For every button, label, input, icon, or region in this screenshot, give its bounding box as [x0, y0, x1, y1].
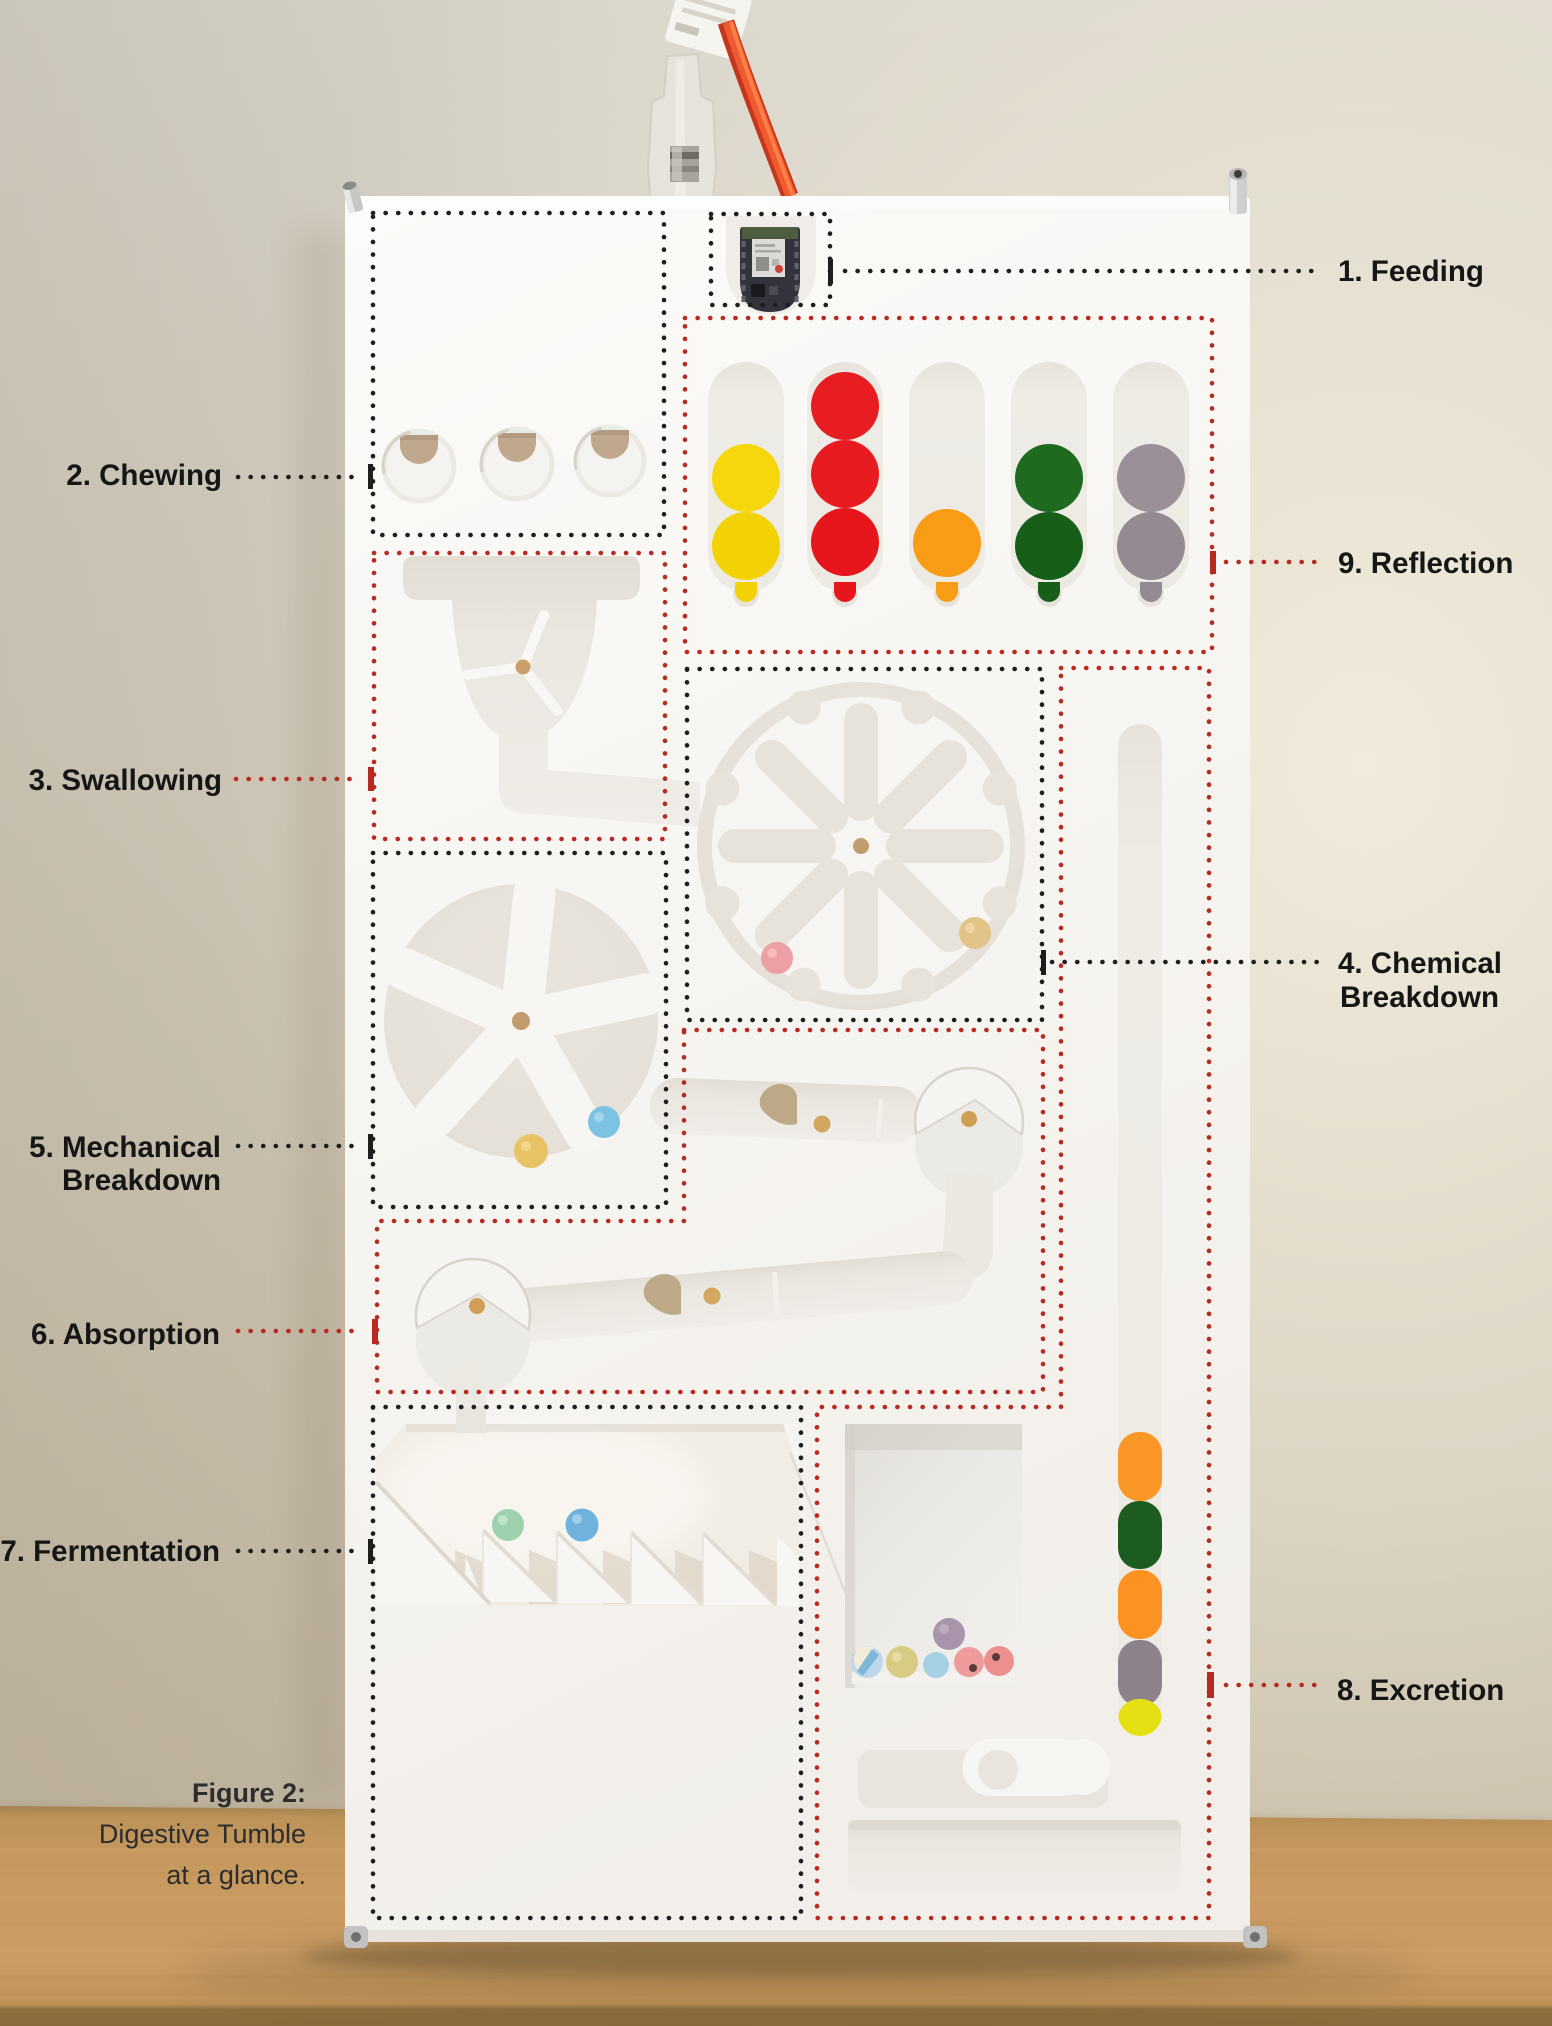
svg-text:8. Excretion: 8. Excretion	[1337, 1674, 1504, 1707]
svg-text:2. Chewing: 2. Chewing	[66, 459, 222, 492]
svg-text:1. Feeding: 1. Feeding	[1338, 255, 1484, 288]
svg-text:4. Chemical: 4. Chemical	[1338, 947, 1502, 980]
svg-text:6. Absorption: 6. Absorption	[31, 1318, 220, 1351]
svg-text:Breakdown: Breakdown	[1340, 981, 1499, 1014]
svg-text:5. Mechanical: 5. Mechanical	[29, 1131, 221, 1164]
svg-text:7. Fermentation: 7. Fermentation	[0, 1535, 220, 1568]
svg-text:3. Swallowing: 3. Swallowing	[29, 764, 222, 797]
svg-text:Figure 2:: Figure 2:	[192, 1778, 306, 1808]
svg-text:at a glance.: at a glance.	[166, 1860, 306, 1890]
svg-text:9. Reflection: 9. Reflection	[1338, 547, 1513, 580]
svg-text:Digestive Tumble: Digestive Tumble	[99, 1819, 306, 1849]
svg-text:Breakdown: Breakdown	[62, 1164, 221, 1197]
